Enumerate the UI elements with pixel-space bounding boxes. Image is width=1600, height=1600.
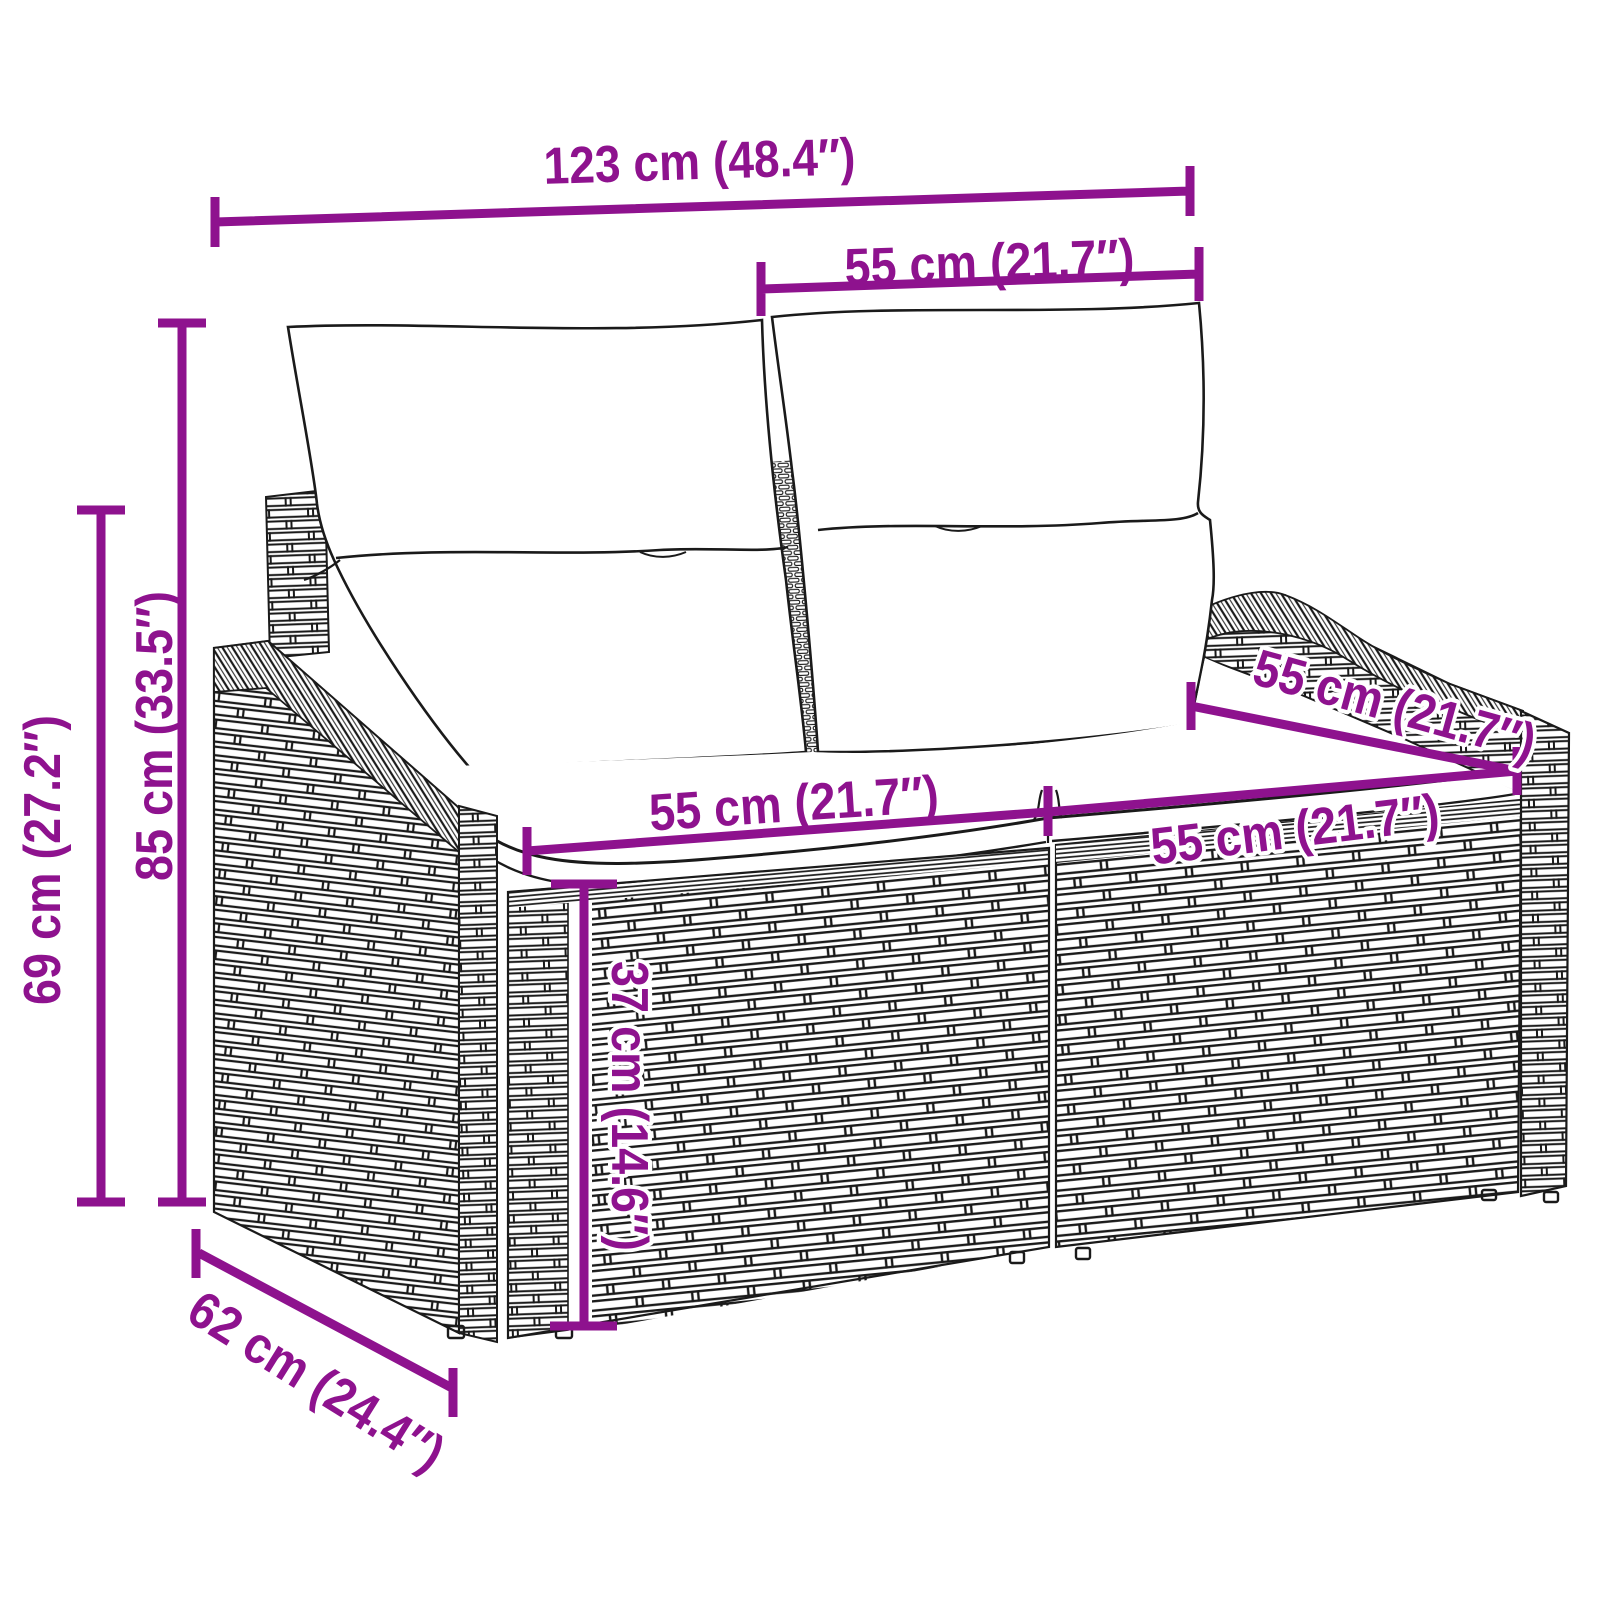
svg-text:55 cm (21.7″): 55 cm (21.7″) — [843, 229, 1135, 297]
svg-text:123 cm (48.4″): 123 cm (48.4″) — [543, 128, 857, 196]
svg-text:37 cm (14.6″): 37 cm (14.6″) — [600, 961, 658, 1251]
svg-text:69 cm (27.2″): 69 cm (27.2″) — [14, 715, 72, 1005]
svg-text:85 cm (33.5″): 85 cm (33.5″) — [126, 591, 184, 881]
